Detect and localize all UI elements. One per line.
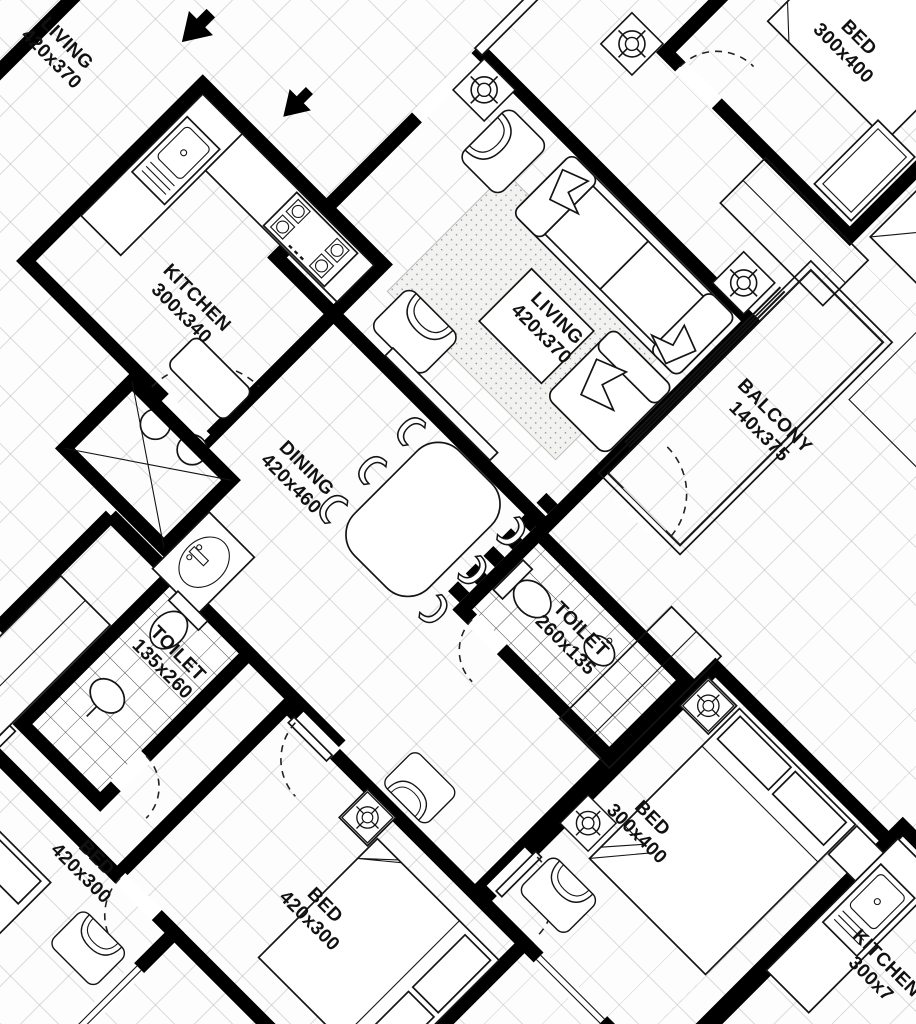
rotated-plan-group: LIVING 420x370 KITCHEN 300x340 LIVING 42… [0,0,916,1024]
living-armchair [458,106,549,197]
ceiling-fan-icon [601,13,663,75]
floor-plan-canvas: LIVING 420x370 KITCHEN 300x340 LIVING 42… [0,0,916,1024]
double-bed [259,839,499,1024]
entrance-arrow-icon [273,80,320,127]
bedroom-armchair [48,908,128,988]
entrance-arrow-icon [170,1,223,54]
double-bed [768,0,916,140]
floor-plan-drawing: LIVING 420x370 KITCHEN 300x340 LIVING 42… [0,0,916,1024]
entrance-door-leaf [475,0,544,55]
dresser [814,120,914,220]
bed-top-door-swing [680,30,754,104]
neighbor-entrance-door-swing [115,0,239,11]
